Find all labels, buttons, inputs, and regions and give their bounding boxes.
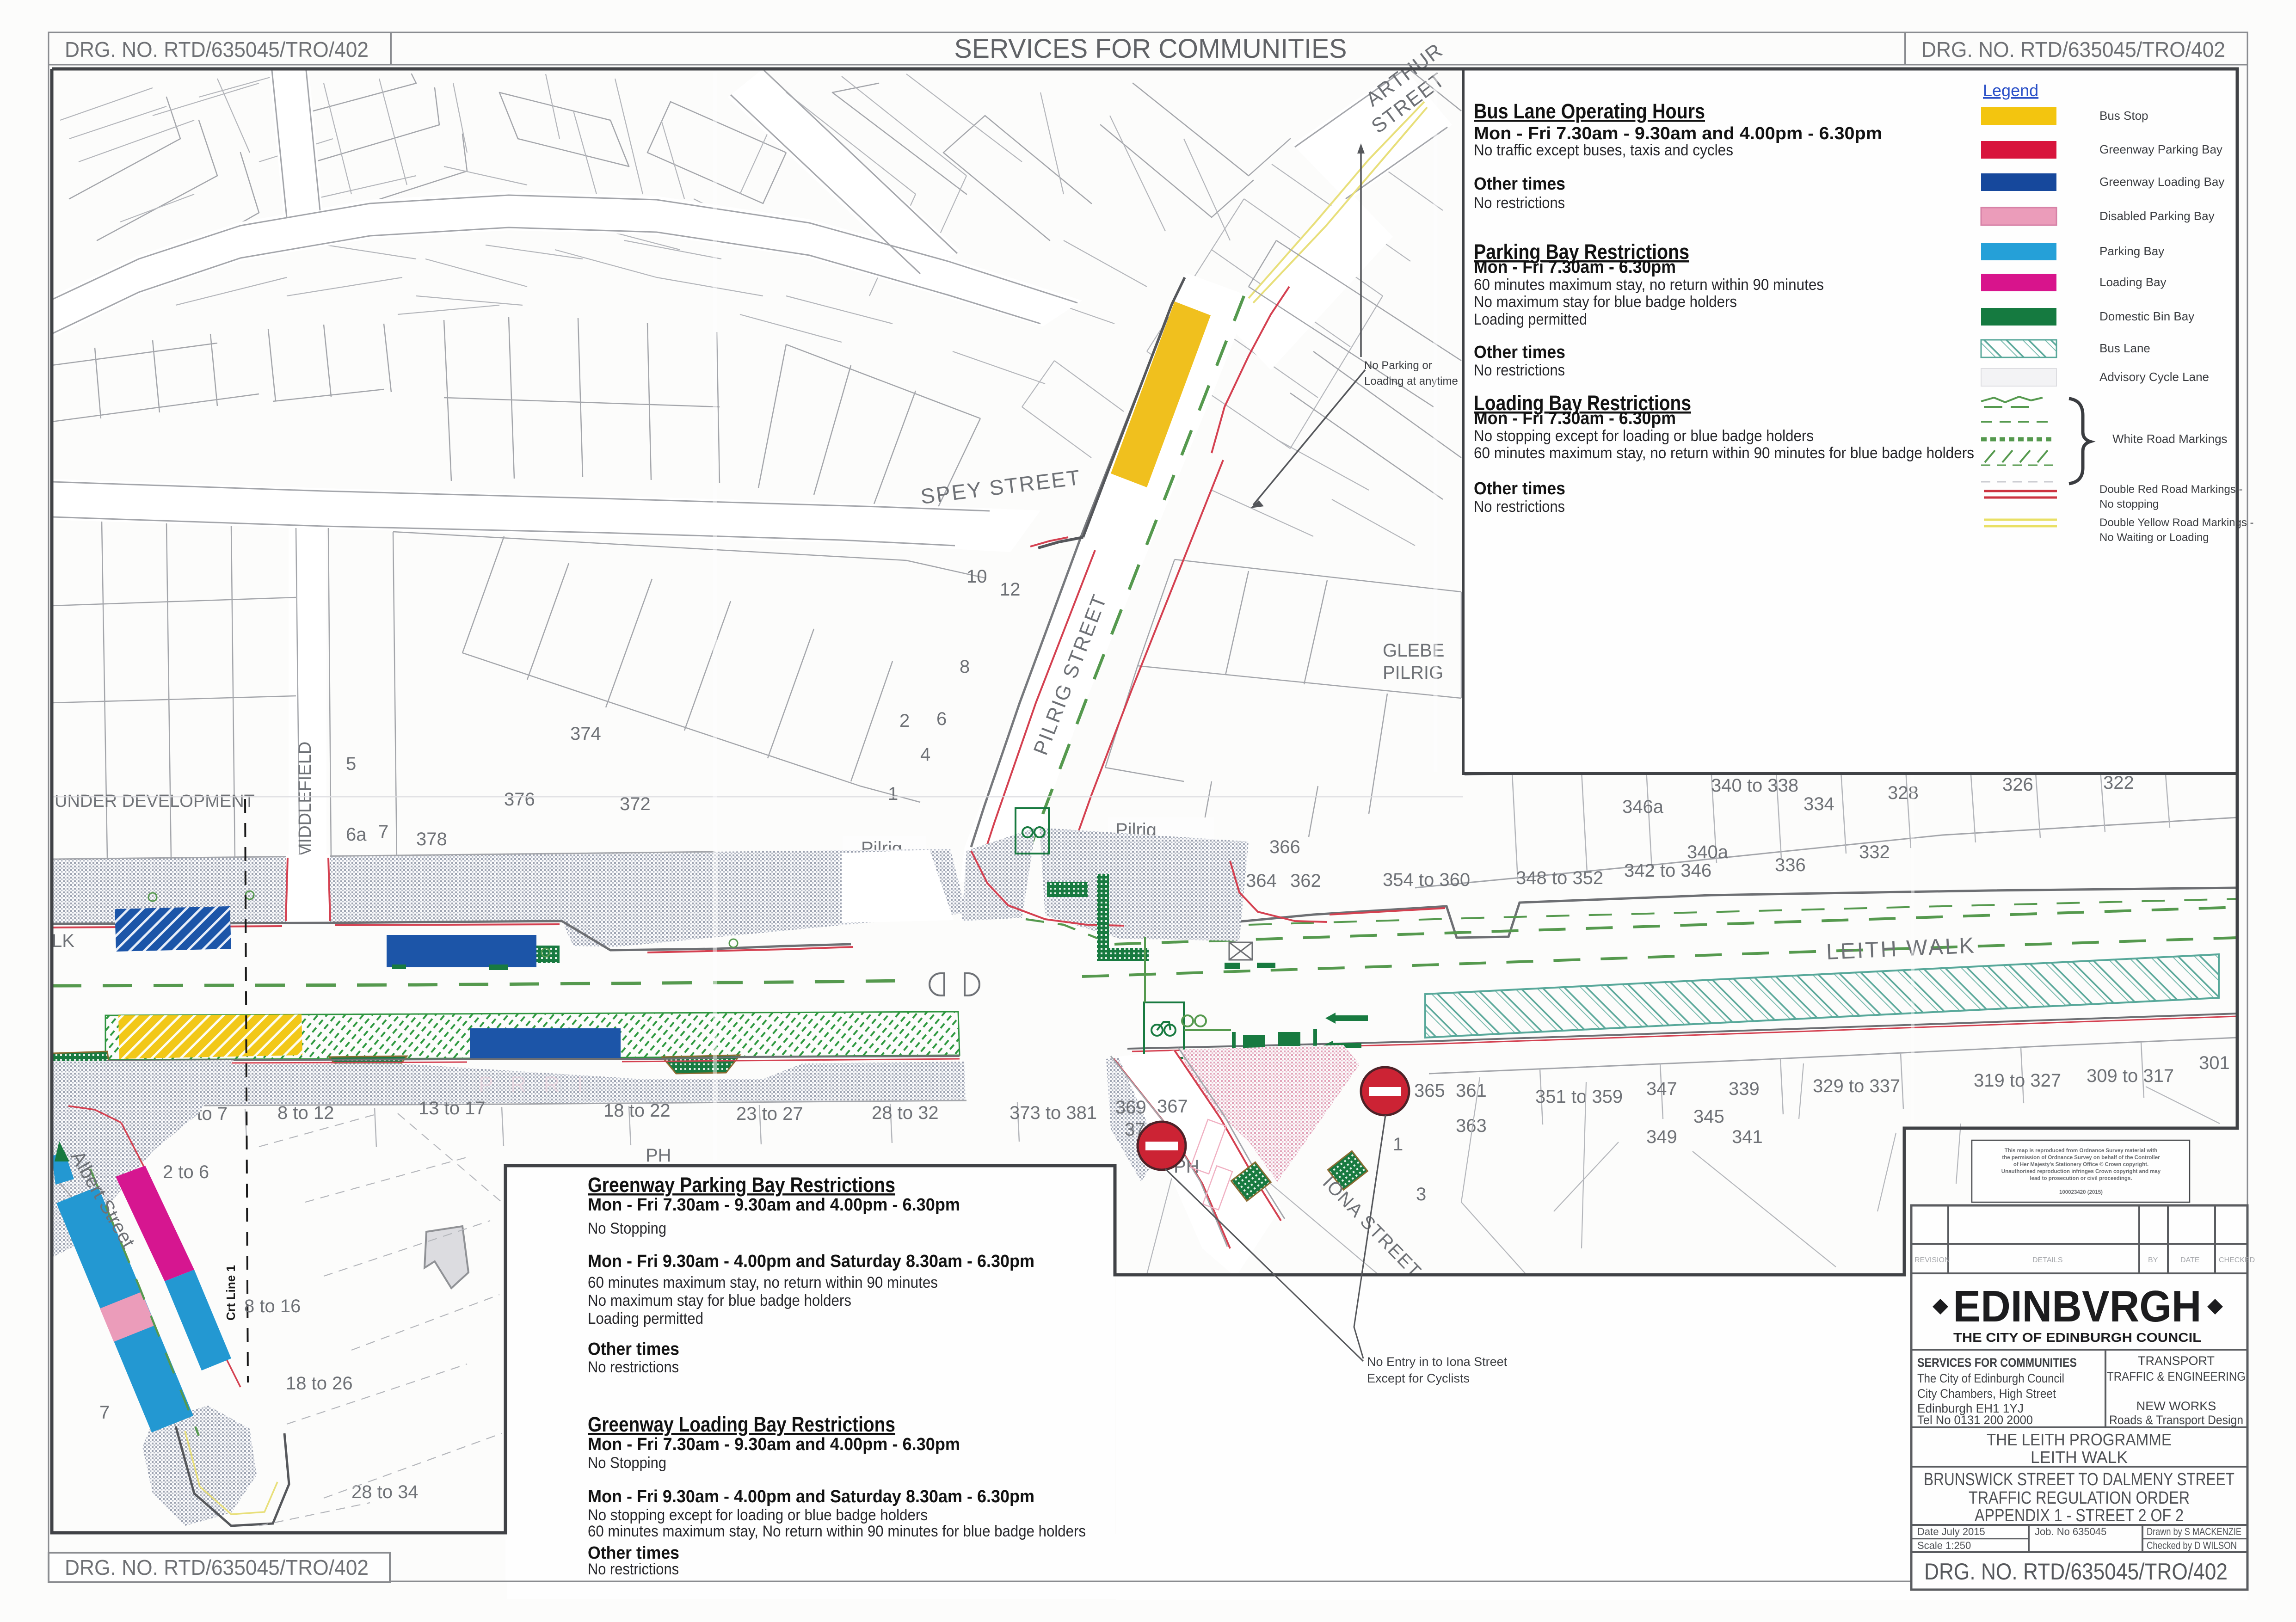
svg-text:373 to 381: 373 to 381 [1010,1103,1097,1123]
svg-text:DETAILS: DETAILS [2032,1256,2063,1264]
svg-text:Parking Bay: Parking Bay [2099,244,2164,258]
svg-text:Roads & Transport Design: Roads & Transport Design [2109,1413,2243,1427]
svg-text:Loading Bay: Loading Bay [2099,275,2167,289]
svg-text:BRUNSWICK STREET TO DALMENY ST: BRUNSWICK STREET TO DALMENY STREET [1924,1470,2234,1489]
svg-text:No restrictions: No restrictions [1474,498,1565,516]
svg-text:342 to 346: 342 to 346 [1624,860,1711,881]
svg-text:BY: BY [2148,1256,2158,1264]
svg-text:MIDDLEFIELD: MIDDLEFIELD [295,742,315,858]
svg-text:Other times: Other times [588,1543,679,1563]
svg-text:APPENDIX 1 - STREET 2 OF 2: APPENDIX 1 - STREET 2 OF 2 [1975,1506,2184,1525]
svg-text:Except for Cyclists: Except for Cyclists [1367,1371,1470,1385]
svg-text:2 to 6: 2 to 6 [163,1162,209,1182]
svg-text:No traffic except buses, taxis: No traffic except buses, taxis and cycle… [1474,141,1733,159]
svg-text:REVISION: REVISION [1914,1256,1950,1264]
svg-text:Advisory Cycle Lane: Advisory Cycle Lane [2099,370,2209,384]
svg-text:Other times: Other times [588,1339,679,1359]
svg-text:Domestic Bin Bay: Domestic Bin Bay [2099,309,2194,323]
svg-text:367: 367 [1157,1096,1188,1117]
svg-text:5: 5 [346,754,356,774]
svg-text:351 to 359: 351 to 359 [1535,1087,1623,1107]
svg-text:309 to 317: 309 to 317 [2087,1066,2174,1086]
svg-text:Greenway Parking Bay: Greenway Parking Bay [2099,142,2222,156]
svg-text:No restrictions: No restrictions [588,1561,679,1578]
svg-text:No Entry in to Iona Street: No Entry in to Iona Street [1367,1355,1508,1369]
svg-text:301: 301 [2199,1053,2230,1073]
svg-text:No stopping except for loading: No stopping except for loading or blue b… [588,1506,928,1524]
svg-text:Mon - Fri 7.30am - 9.30am and: Mon - Fri 7.30am - 9.30am and 4.00pm - 6… [588,1435,960,1454]
svg-text:Drawn by S MACKENZIE: Drawn by S MACKENZIE [2147,1526,2241,1537]
svg-text:DRG. NO. RTD/635045/TRO/402: DRG. NO. RTD/635045/TRO/402 [65,1555,369,1579]
svg-text:Mon - Fri 7.30am - 9.30am and: Mon - Fri 7.30am - 9.30am and 4.00pm - 6… [588,1195,960,1215]
svg-text:378: 378 [416,829,447,849]
svg-text:18 to 26: 18 to 26 [286,1373,353,1394]
svg-text:Disabled Parking Bay: Disabled Parking Bay [2099,209,2215,223]
svg-text:Tel No 0131 200 2000: Tel No 0131 200 2000 [1917,1413,2033,1427]
svg-text:Mon - Fri 7.30am - 6.30pm: Mon - Fri 7.30am - 6.30pm [1474,409,1676,428]
svg-text:334: 334 [1804,794,1834,814]
svg-text:No Stopping: No Stopping [588,1220,666,1237]
svg-text:Checked by D WILSON: Checked by D WILSON [2147,1540,2237,1551]
svg-text:1: 1 [888,784,898,804]
svg-text:No restrictions: No restrictions [588,1358,679,1376]
svg-text:13 to 17: 13 to 17 [419,1098,486,1118]
svg-text:PH: PH [646,1145,671,1166]
svg-text:349: 349 [1646,1127,1677,1147]
svg-text:No Stopping: No Stopping [588,1454,666,1472]
svg-text:Unauthorised reproduction infr: Unauthorised reproduction infringes Crow… [2001,1169,2161,1174]
svg-text:3: 3 [1416,1184,1426,1204]
svg-text:Other times: Other times [1474,479,1565,498]
svg-text:361: 361 [1456,1081,1487,1101]
svg-text:6: 6 [936,709,947,729]
svg-text:10: 10 [966,566,987,587]
svg-text:Other times: Other times [1474,174,1565,194]
svg-text:Scale 1:250: Scale 1:250 [1917,1540,1971,1551]
svg-text:7: 7 [378,822,388,842]
svg-text:Mon - Fri 7.30am - 9.30am and: Mon - Fri 7.30am - 9.30am and 4.00pm - 6… [1474,124,1882,143]
svg-text:354 to 360: 354 to 360 [1383,870,1470,890]
svg-text:The City of Edinburgh Council: The City of Edinburgh Council [1917,1371,2064,1385]
svg-text:322: 322 [2103,773,2134,793]
svg-text:332: 332 [1859,842,1890,862]
svg-text:Bus Lane: Bus Lane [2099,341,2150,355]
svg-text:Double Red Road Markings -: Double Red Road Markings - [2099,483,2242,496]
svg-text:23 to 27: 23 to 27 [736,1104,803,1124]
svg-text:28 to 34: 28 to 34 [351,1482,419,1502]
svg-text:P R R I: P R R I [479,1073,589,1097]
svg-text:No restrictions: No restrictions [1474,362,1565,379]
svg-text:UNDER DEVELOPMENT: UNDER DEVELOPMENT [55,792,255,811]
svg-text:No Parking or: No Parking or [1364,359,1432,372]
svg-text:362: 362 [1290,871,1321,891]
svg-text:Greenway Loading Bay Restricti: Greenway Loading Bay Restrictions [588,1413,895,1436]
svg-text:Mon - Fri 9.30am - 4.00pm and: Mon - Fri 9.30am - 4.00pm and Saturday 8… [588,1252,1034,1271]
svg-text:LEITH WALK: LEITH WALK [2031,1448,2128,1467]
svg-text:341: 341 [1732,1127,1763,1147]
svg-text:EDINBVRGH: EDINBVRGH [1953,1282,2202,1331]
svg-text:340 to 338: 340 to 338 [1711,775,1798,796]
svg-text:8: 8 [960,657,970,677]
svg-text:374: 374 [570,724,601,744]
svg-text:2: 2 [899,711,910,731]
svg-text:18 to 22: 18 to 22 [603,1100,671,1121]
svg-text:DATE: DATE [2180,1256,2199,1264]
svg-text:TRAFFIC REGULATION ORDER: TRAFFIC REGULATION ORDER [1969,1488,2190,1508]
svg-text:364: 364 [1246,871,1277,891]
svg-text:340a: 340a [1687,842,1729,862]
svg-text:345: 345 [1693,1106,1724,1127]
svg-text:Bus Lane Operating Hours: Bus Lane Operating Hours [1474,99,1705,123]
svg-text:the permission of Ordnance Sur: the permission of Ordnance Survey on beh… [2002,1155,2160,1161]
svg-text:LK: LK [52,931,74,951]
svg-text:Legend: Legend [1983,81,2038,100]
svg-text:Date July 2015: Date July 2015 [1917,1526,1985,1537]
svg-text:No restrictions: No restrictions [1474,194,1565,212]
svg-text:Other times: Other times [1474,343,1565,362]
svg-text:339: 339 [1729,1079,1760,1099]
svg-text:1: 1 [1393,1134,1403,1155]
svg-text:348 to 352: 348 to 352 [1516,868,1603,888]
svg-text:366: 366 [1269,837,1300,857]
svg-text:347: 347 [1646,1079,1677,1099]
svg-text:No maximum stay for blue badge: No maximum stay for blue badge holders [588,1292,851,1309]
svg-text:12: 12 [1000,579,1021,600]
svg-text:TRANSPORT: TRANSPORT [2138,1354,2215,1368]
svg-text:City Chambers, High Street: City Chambers, High Street [1917,1387,2056,1401]
svg-text:THE LEITH PROGRAMME: THE LEITH PROGRAMME [1987,1430,2172,1449]
svg-text:Mon - Fri 7.30am - 6.30pm: Mon - Fri 7.30am - 6.30pm [1474,258,1676,277]
svg-text:Loading at anytime: Loading at anytime [1364,375,1458,387]
svg-text:THE CITY OF EDINBURGH COUNCIL: THE CITY OF EDINBURGH COUNCIL [1953,1330,2201,1345]
svg-text:Greenway Parking Bay Restricti: Greenway Parking Bay Restrictions [588,1173,895,1197]
svg-text:60 minutes maximum stay, no re: 60 minutes maximum stay, no return withi… [1474,276,1824,294]
svg-text:Job. No 635045: Job. No 635045 [2035,1526,2106,1537]
svg-text:329 to 337: 329 to 337 [1813,1076,1900,1096]
svg-text:346a: 346a [1622,797,1664,817]
svg-text:No stopping: No stopping [2099,498,2159,510]
svg-text:60 minutes maximum stay, no re: 60 minutes maximum stay, no return withi… [1474,444,1974,462]
svg-text:326: 326 [2002,774,2033,795]
svg-text:4: 4 [920,744,930,765]
svg-text:100023420 (2015): 100023420 (2015) [2059,1190,2103,1195]
svg-text:DRG. NO. RTD/635045/TRO/402: DRG. NO. RTD/635045/TRO/402 [65,37,369,61]
svg-text:369: 369 [1115,1097,1146,1118]
svg-text:6a: 6a [346,824,367,845]
svg-text:8 to 16: 8 to 16 [244,1296,301,1316]
svg-text:376: 376 [504,789,535,810]
svg-text:319 to 327: 319 to 327 [1974,1070,2061,1091]
svg-text:60 minutes maximum stay, no re: 60 minutes maximum stay, no return withi… [588,1274,938,1291]
svg-text:NEW WORKS: NEW WORKS [2136,1399,2216,1413]
svg-text:60 minutes maximum stay, No re: 60 minutes maximum stay, No return withi… [588,1523,1086,1540]
svg-text:8 to 12: 8 to 12 [277,1103,334,1123]
svg-text:Greenway Loading Bay: Greenway Loading Bay [2099,175,2224,189]
svg-text:No maximum stay for blue badge: No maximum stay for blue badge holders [1474,293,1737,311]
svg-text:CHECKED: CHECKED [2219,1256,2255,1264]
svg-text:336: 336 [1775,855,1806,875]
svg-text:TRAFFIC & ENGINEERING: TRAFFIC & ENGINEERING [2107,1370,2246,1383]
svg-text:White Road Markings: White Road Markings [2112,432,2228,446]
svg-text:365: 365 [1414,1081,1445,1101]
svg-text:28 to 32: 28 to 32 [872,1103,939,1123]
svg-text:DRG. NO. RTD/635045/TRO/402: DRG. NO. RTD/635045/TRO/402 [1921,37,2225,61]
svg-text:Loading permitted: Loading permitted [1474,311,1587,328]
svg-text:No Waiting or Loading: No Waiting or Loading [2099,531,2209,544]
svg-text:SERVICES FOR COMMUNITIES: SERVICES FOR COMMUNITIES [954,34,1347,64]
svg-text:SERVICES FOR COMMUNITIES: SERVICES FOR COMMUNITIES [1917,1356,2077,1370]
svg-text:DRG. NO. RTD/635045/TRO/402: DRG. NO. RTD/635045/TRO/402 [1924,1559,2228,1585]
svg-text:Bus Stop: Bus Stop [2099,109,2148,123]
svg-text:Crt Line 1: Crt Line 1 [224,1265,238,1321]
svg-text:lead to prosecution or civil p: lead to prosecution or civil proceedings… [2030,1176,2132,1181]
svg-text:This map is reproduced from Or: This map is reproduced from Ordnance Sur… [2005,1148,2157,1154]
svg-text:Mon - Fri 9.30am - 4.00pm and: Mon - Fri 9.30am - 4.00pm and Saturday 8… [588,1487,1034,1506]
svg-text:No stopping except for loading: No stopping except for loading or blue b… [1474,427,1814,445]
svg-text:of Her Majesty's Stationery Of: of Her Majesty's Stationery Office © Cro… [2013,1162,2148,1167]
svg-text:7: 7 [99,1402,110,1423]
svg-text:Double Yellow Road Markings -: Double Yellow Road Markings - [2099,516,2254,529]
svg-text:Loading permitted: Loading permitted [588,1310,703,1327]
